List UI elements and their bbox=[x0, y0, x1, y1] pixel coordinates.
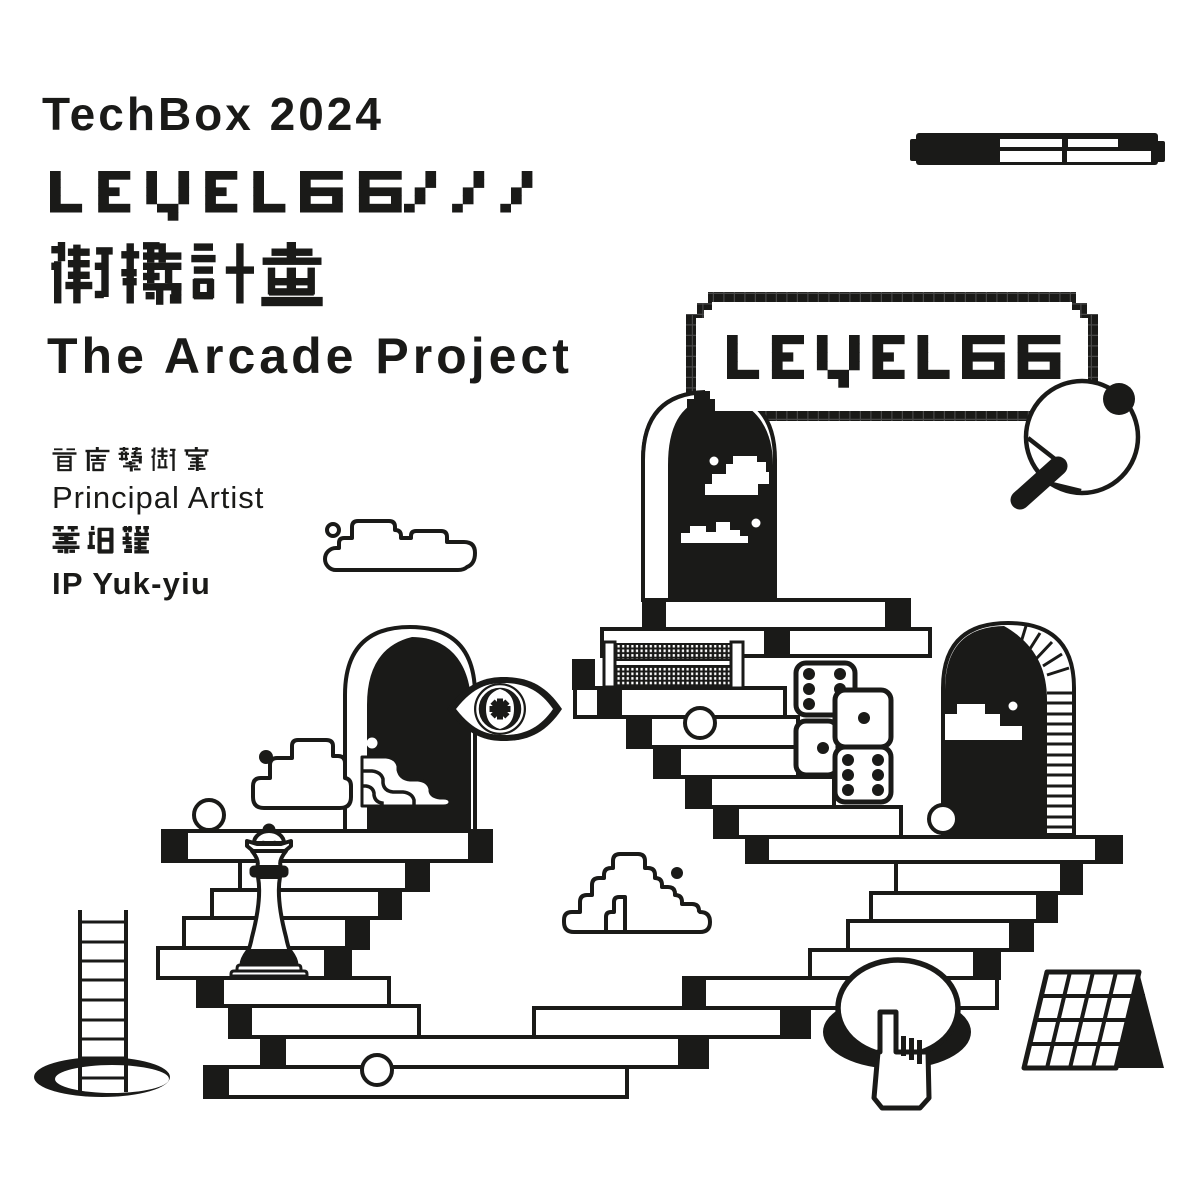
svg-text:TechBox 2024: TechBox 2024 bbox=[42, 88, 384, 140]
svg-text:Principal Artist: Principal Artist bbox=[52, 480, 264, 515]
svg-text:IP Yuk-yiu: IP Yuk-yiu bbox=[52, 566, 211, 601]
svg-text:The Arcade Project: The Arcade Project bbox=[47, 328, 573, 384]
